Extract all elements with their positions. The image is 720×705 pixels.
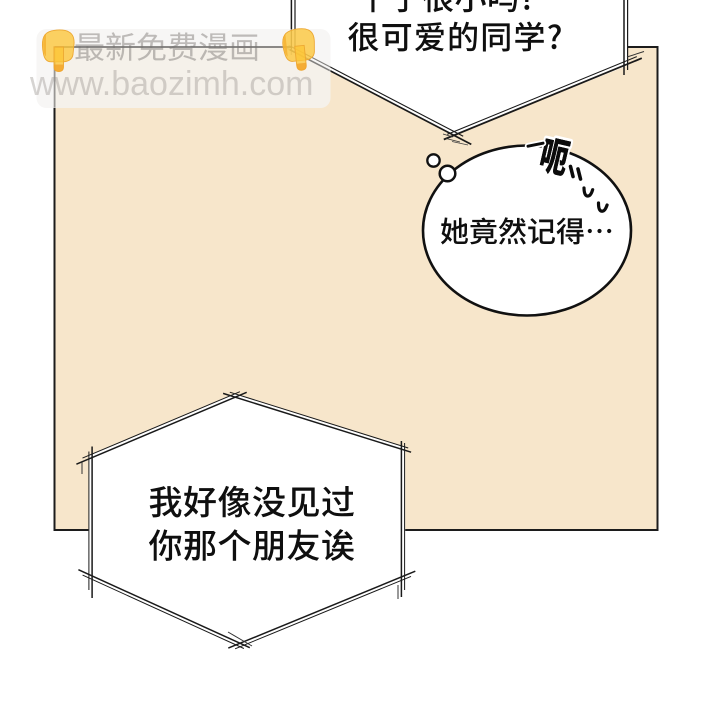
svg-text:www.baozimh.com: www.baozimh.com [29, 65, 313, 103]
